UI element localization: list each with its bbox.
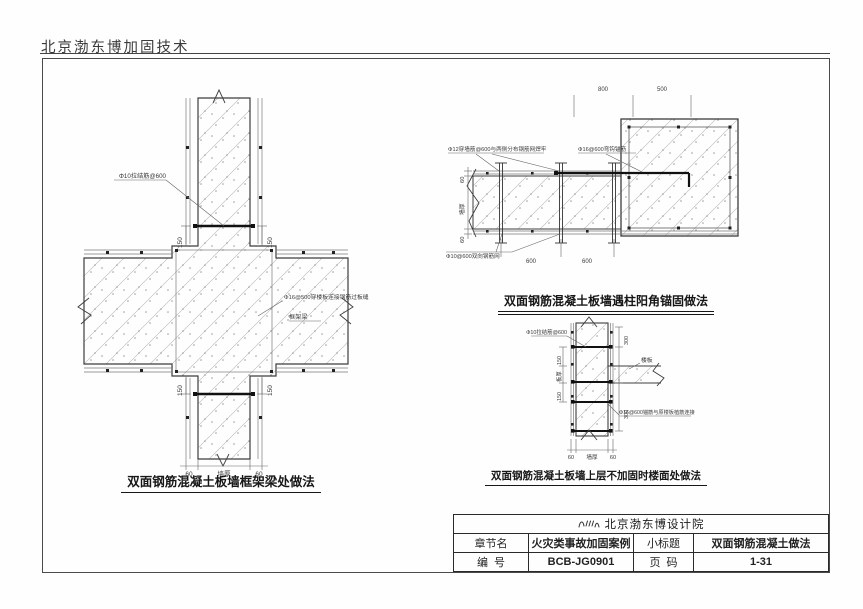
subtitle-label: 小标题 [634,534,694,553]
number-value: BCB-JG0901 [529,553,634,571]
dim-150: 150 [177,385,184,396]
institute-logo [578,518,600,530]
dim-800: 800 [598,87,609,93]
dim-150: 150 [267,385,274,396]
caption-wall-frame-beam: 双面钢筋混凝土板墙框架梁处做法 [86,471,356,493]
page-label: 页 码 [634,553,694,571]
top-dim-ticks [574,95,691,117]
note-through-wall: Φ12穿墙筋@600与两侧分布钢筋网焊牢 [448,145,547,153]
drawing-wall-floor-slab: 150 板厚 150 300 300 Φ10拉结筋@600 楼板 Φ16@600… [501,319,701,464]
dim-wall-thickness: 墙厚 [458,203,466,215]
wall-section [473,176,621,229]
dim-150: 150 [177,237,184,248]
page-value: 1-31 [694,553,828,571]
dim-150: 150 [557,356,563,365]
note-mesh: Φ10@600双向钢筋网 [446,252,500,260]
chapter-value: 火灾类事故加固案例 [529,534,634,553]
tie-bar-label: Φ10拉结筋@600 [526,328,567,336]
header-rule [40,53,830,54]
bottom-dim-lines [567,439,617,453]
slab-label: 楼板 [641,356,653,364]
column-section [621,119,738,236]
concrete-cross-section [84,98,348,459]
caption-wall-column-corner: 双面钢筋混凝土板墙遇柱阳角锚固做法 [446,292,766,315]
institute-row: 北京渤东博设计院 [454,515,828,534]
subtitle-value: 双面钢筋混凝土做法 [694,534,828,553]
tie-bar-label: Φ10拉结筋@600 [119,172,167,180]
dim-60: 60 [460,237,466,243]
drawing-wall-frame-beam: 150 150 150 150 Φ10拉结筋@600 Φ16@500穿楼板连接钢… [76,86,356,471]
institute-name: 北京渤东博设计院 [605,516,705,532]
title-block: 北京渤东博设计院 章节名 火灾类事故加固案例 小标题 双面钢筋混凝土做法 编 号… [453,514,829,572]
number-label: 编 号 [454,553,529,571]
frame-beam-label: 框架梁 [289,313,308,321]
dim-150: 150 [267,237,274,248]
drawing-wall-column-corner: 800 500 600 600 60 墙厚 60 Φ12穿墙筋@600与两侧分布… [446,81,766,291]
anchor-note: Φ16@600锚筋与原楼板植筋连接 [619,408,695,416]
dim-300: 300 [624,336,630,345]
slab-bar-note: Φ16@500穿楼板连接钢筋过板缝 [284,293,369,301]
wall-section [576,323,608,436]
dim-600: 600 [582,259,593,265]
dim-600: 600 [526,259,537,265]
sheet-frame: 150 150 150 150 Φ10拉结筋@600 Φ16@500穿楼板连接钢… [42,58,830,573]
floor-slab [613,366,658,383]
dim-wall-thickness: 墙厚 [586,453,598,461]
note-hook-anchor: Φ16@600弯钩锚筋 [578,145,626,153]
bottom-dim-ticks [501,239,614,257]
dim-60: 60 [610,455,616,461]
caption-wall-floor-slab: 双面钢筋混凝土板墙上层不加固时楼面处做法 [441,466,751,486]
dim-60: 60 [568,455,574,461]
chapter-label: 章节名 [454,534,529,553]
dim-60: 60 [460,177,466,183]
dim-slab-thickness: 板厚 [555,371,563,382]
dim-500: 500 [657,87,668,93]
dim-150: 150 [557,392,563,401]
